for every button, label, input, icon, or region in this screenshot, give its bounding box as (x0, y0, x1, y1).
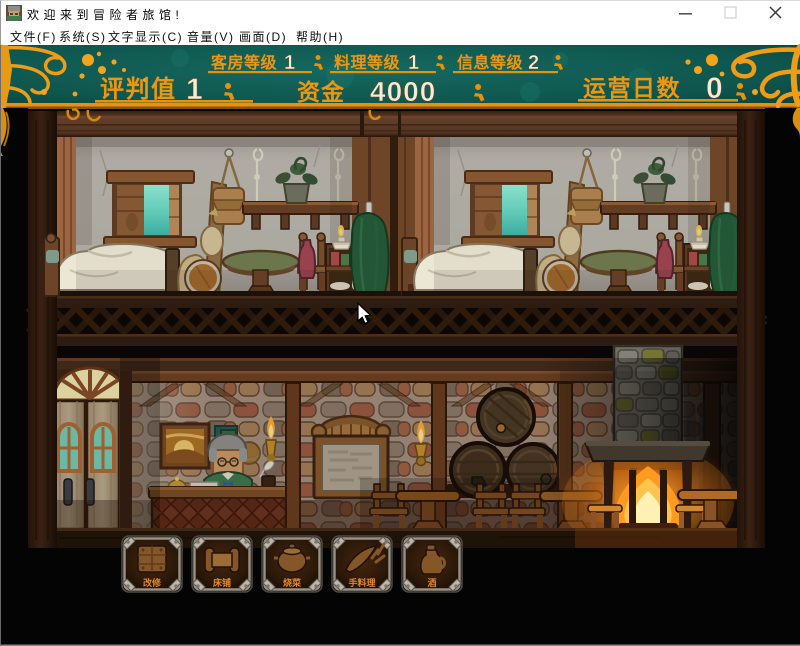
svg-text:改修: 改修 (143, 577, 162, 588)
svg-text:4000: 4000 (370, 76, 436, 107)
svg-text:烧菜: 烧菜 (283, 577, 302, 588)
svg-text:评判值: 评判值 (100, 75, 177, 103)
svg-text:1: 1 (408, 52, 419, 74)
svg-text:1: 1 (284, 52, 295, 74)
svg-text:酒: 酒 (427, 577, 436, 588)
svg-text:2: 2 (528, 52, 539, 74)
svg-text:运营日数: 运营日数 (583, 75, 681, 101)
svg-text:床铺: 床铺 (213, 577, 231, 588)
svg-text:资金: 资金 (297, 79, 345, 105)
svg-text:客房等级: 客房等级 (211, 53, 278, 72)
svg-text:信息等级: 信息等级 (457, 53, 524, 72)
svg-text:料理等级: 料理等级 (334, 53, 401, 72)
svg-text:手料理: 手料理 (348, 577, 375, 588)
